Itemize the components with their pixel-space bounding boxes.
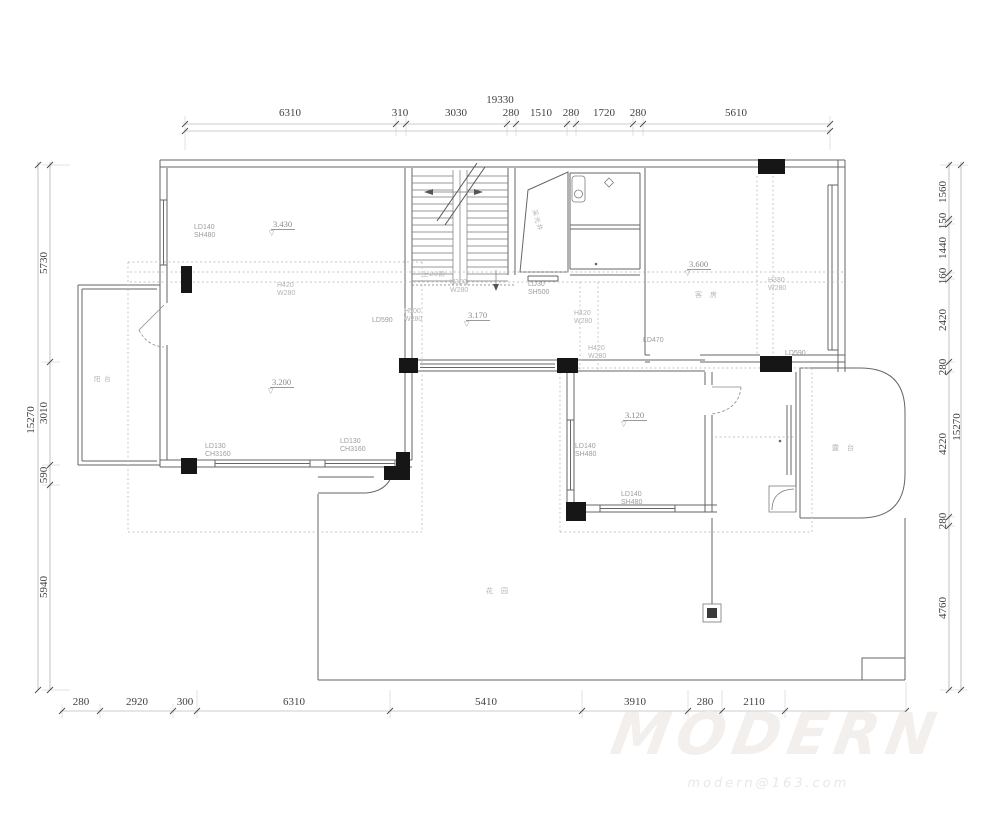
dim-top-segment: 6310 xyxy=(279,107,301,119)
dim-top-segment: 1510 xyxy=(530,107,552,119)
opening-label: LD130CH3160 xyxy=(340,438,366,454)
dim-top-segment: 310 xyxy=(392,107,409,119)
beam-label: H420W280 xyxy=(588,345,606,361)
opening-label: LD30SH500 xyxy=(528,281,549,297)
floor-drain-icon xyxy=(605,178,614,187)
elevation-triangle-icon: ▽ xyxy=(621,420,626,428)
beam-label: H380W280 xyxy=(768,277,786,293)
opening-label: LD590 xyxy=(372,317,393,325)
garden-column xyxy=(703,604,721,622)
elevation-marker: ▽3.120 xyxy=(623,410,647,421)
dim-right-segment: 1560 xyxy=(937,181,949,203)
opening-label: LD140SH480 xyxy=(575,443,596,459)
dim-bottom-segment: 3910 xyxy=(624,696,646,708)
elevation-marker: ▽3.430 xyxy=(271,219,295,230)
dim-bottom-segment: 5410 xyxy=(475,696,497,708)
elevation-triangle-icon: ▽ xyxy=(268,387,273,395)
beam-label: H500W280 xyxy=(404,308,422,324)
dim-right-segment: 4760 xyxy=(937,597,949,619)
dim-bottom-segment: 2920 xyxy=(126,696,148,708)
opening-label: LD140SH480 xyxy=(621,491,642,507)
dimension-lines xyxy=(38,124,961,711)
dim-bottom-segment: 6310 xyxy=(283,696,305,708)
elevation-triangle-icon: ▽ xyxy=(464,320,469,328)
dim-bottom-segment: 2110 xyxy=(743,696,765,708)
dotted-guides xyxy=(128,176,845,532)
elevation-triangle-icon: ▽ xyxy=(269,229,274,237)
fixtures xyxy=(572,176,796,512)
elevation-marker: ▽3.200 xyxy=(270,377,294,388)
dim-top-segment: 1720 xyxy=(593,107,615,119)
dim-right-total: 15270 xyxy=(951,413,963,441)
closet-dot xyxy=(779,440,782,443)
opening-label: LD590 xyxy=(785,350,806,358)
floorplan-linework xyxy=(0,0,1000,833)
floor-plan-canvas: 19330 6310 310 3030 280 1510 280 1720 28… xyxy=(0,0,1000,833)
dim-top-total: 19330 xyxy=(486,94,514,106)
dim-right-segment: 2420 xyxy=(937,309,949,331)
door-leaf xyxy=(139,305,741,387)
dim-top-segment: 5610 xyxy=(725,107,747,119)
stair-direction-label: 上20阶 xyxy=(422,268,446,278)
dim-top-segment: 280 xyxy=(630,107,647,119)
room-label-guest-room: 客 房 xyxy=(695,290,720,300)
elevation-triangle-icon: ▽ xyxy=(685,269,690,277)
dim-left-segment: 590 xyxy=(38,467,50,484)
elevation-marker: ▽3.600 xyxy=(687,259,711,270)
dim-top-segment: 3030 xyxy=(445,107,467,119)
dim-right-segment: 280 xyxy=(937,359,949,376)
room-label-terrace: 露 台 xyxy=(832,443,857,453)
dim-right-segment: 150 xyxy=(937,213,949,230)
dim-left-total: 15270 xyxy=(25,406,37,434)
dim-right-segment: 280 xyxy=(937,513,949,530)
room-label-garden: 花 园 xyxy=(486,586,511,596)
dim-left-segment: 3010 xyxy=(38,402,50,424)
elevation-marker: ▽3.170 xyxy=(466,310,490,321)
dim-bottom-segment: 280 xyxy=(73,696,90,708)
closet-box xyxy=(769,486,796,512)
dim-left-segment: 5730 xyxy=(38,252,50,274)
dim-right-segment: 1440 xyxy=(937,237,949,259)
beam-label: H420W280 xyxy=(277,282,295,298)
dim-top-segment: 280 xyxy=(503,107,520,119)
opening-label: LD130CH3160 xyxy=(205,443,231,459)
dim-right-segment: 160 xyxy=(937,268,949,285)
opening-label: LD140SH480 xyxy=(194,224,215,240)
room-label-balcony: 阳 台 xyxy=(94,373,112,383)
stair-break-line xyxy=(437,163,485,225)
beam-label: H420W280 xyxy=(574,310,592,326)
dim-bottom-segment: 300 xyxy=(177,696,194,708)
dim-bottom-segment: 280 xyxy=(697,696,714,708)
dim-right-segment: 4220 xyxy=(937,433,949,455)
dimension-ticks xyxy=(35,121,964,714)
dim-left-segment: 5940 xyxy=(38,576,50,598)
extension-lines xyxy=(42,116,968,718)
drain-dot xyxy=(595,263,598,266)
beam-label: H300W280 xyxy=(450,279,468,295)
opening-label: LD470 xyxy=(643,337,664,345)
dim-top-segment: 280 xyxy=(563,107,580,119)
